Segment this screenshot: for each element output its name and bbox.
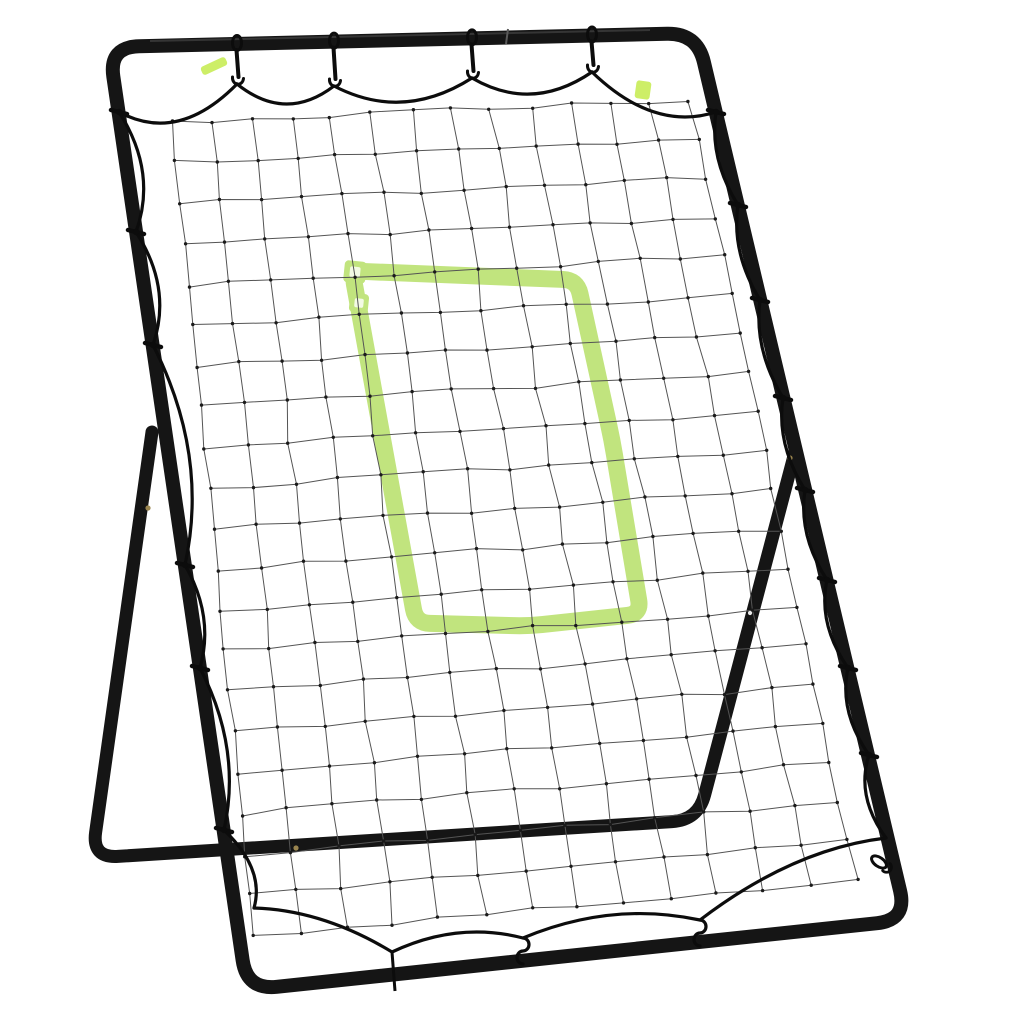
strike-zone-target bbox=[343, 260, 639, 626]
rebounder-illustration bbox=[0, 0, 1024, 1024]
product-photo bbox=[0, 0, 1024, 1024]
bottom-rail-tie bbox=[392, 952, 395, 991]
cord-top bbox=[119, 72, 716, 123]
net-strand-horizontal bbox=[174, 139, 699, 162]
tube-glint bbox=[748, 611, 752, 615]
net-strand-vertical bbox=[329, 118, 437, 918]
green-tag bbox=[634, 80, 651, 100]
net-knots bbox=[171, 100, 860, 937]
net-strand-horizontal bbox=[228, 644, 807, 690]
hinge-bolt bbox=[293, 845, 298, 850]
net-strand-horizontal bbox=[211, 450, 767, 488]
net-mesh bbox=[171, 100, 860, 937]
net-strand-horizontal bbox=[202, 371, 749, 405]
hinge-bolt bbox=[145, 505, 150, 510]
net-strand-horizontal bbox=[180, 178, 706, 204]
strike-zone-band bbox=[354, 272, 639, 626]
perimeter-bungee-cord bbox=[119, 72, 886, 952]
green-tag bbox=[200, 56, 228, 76]
